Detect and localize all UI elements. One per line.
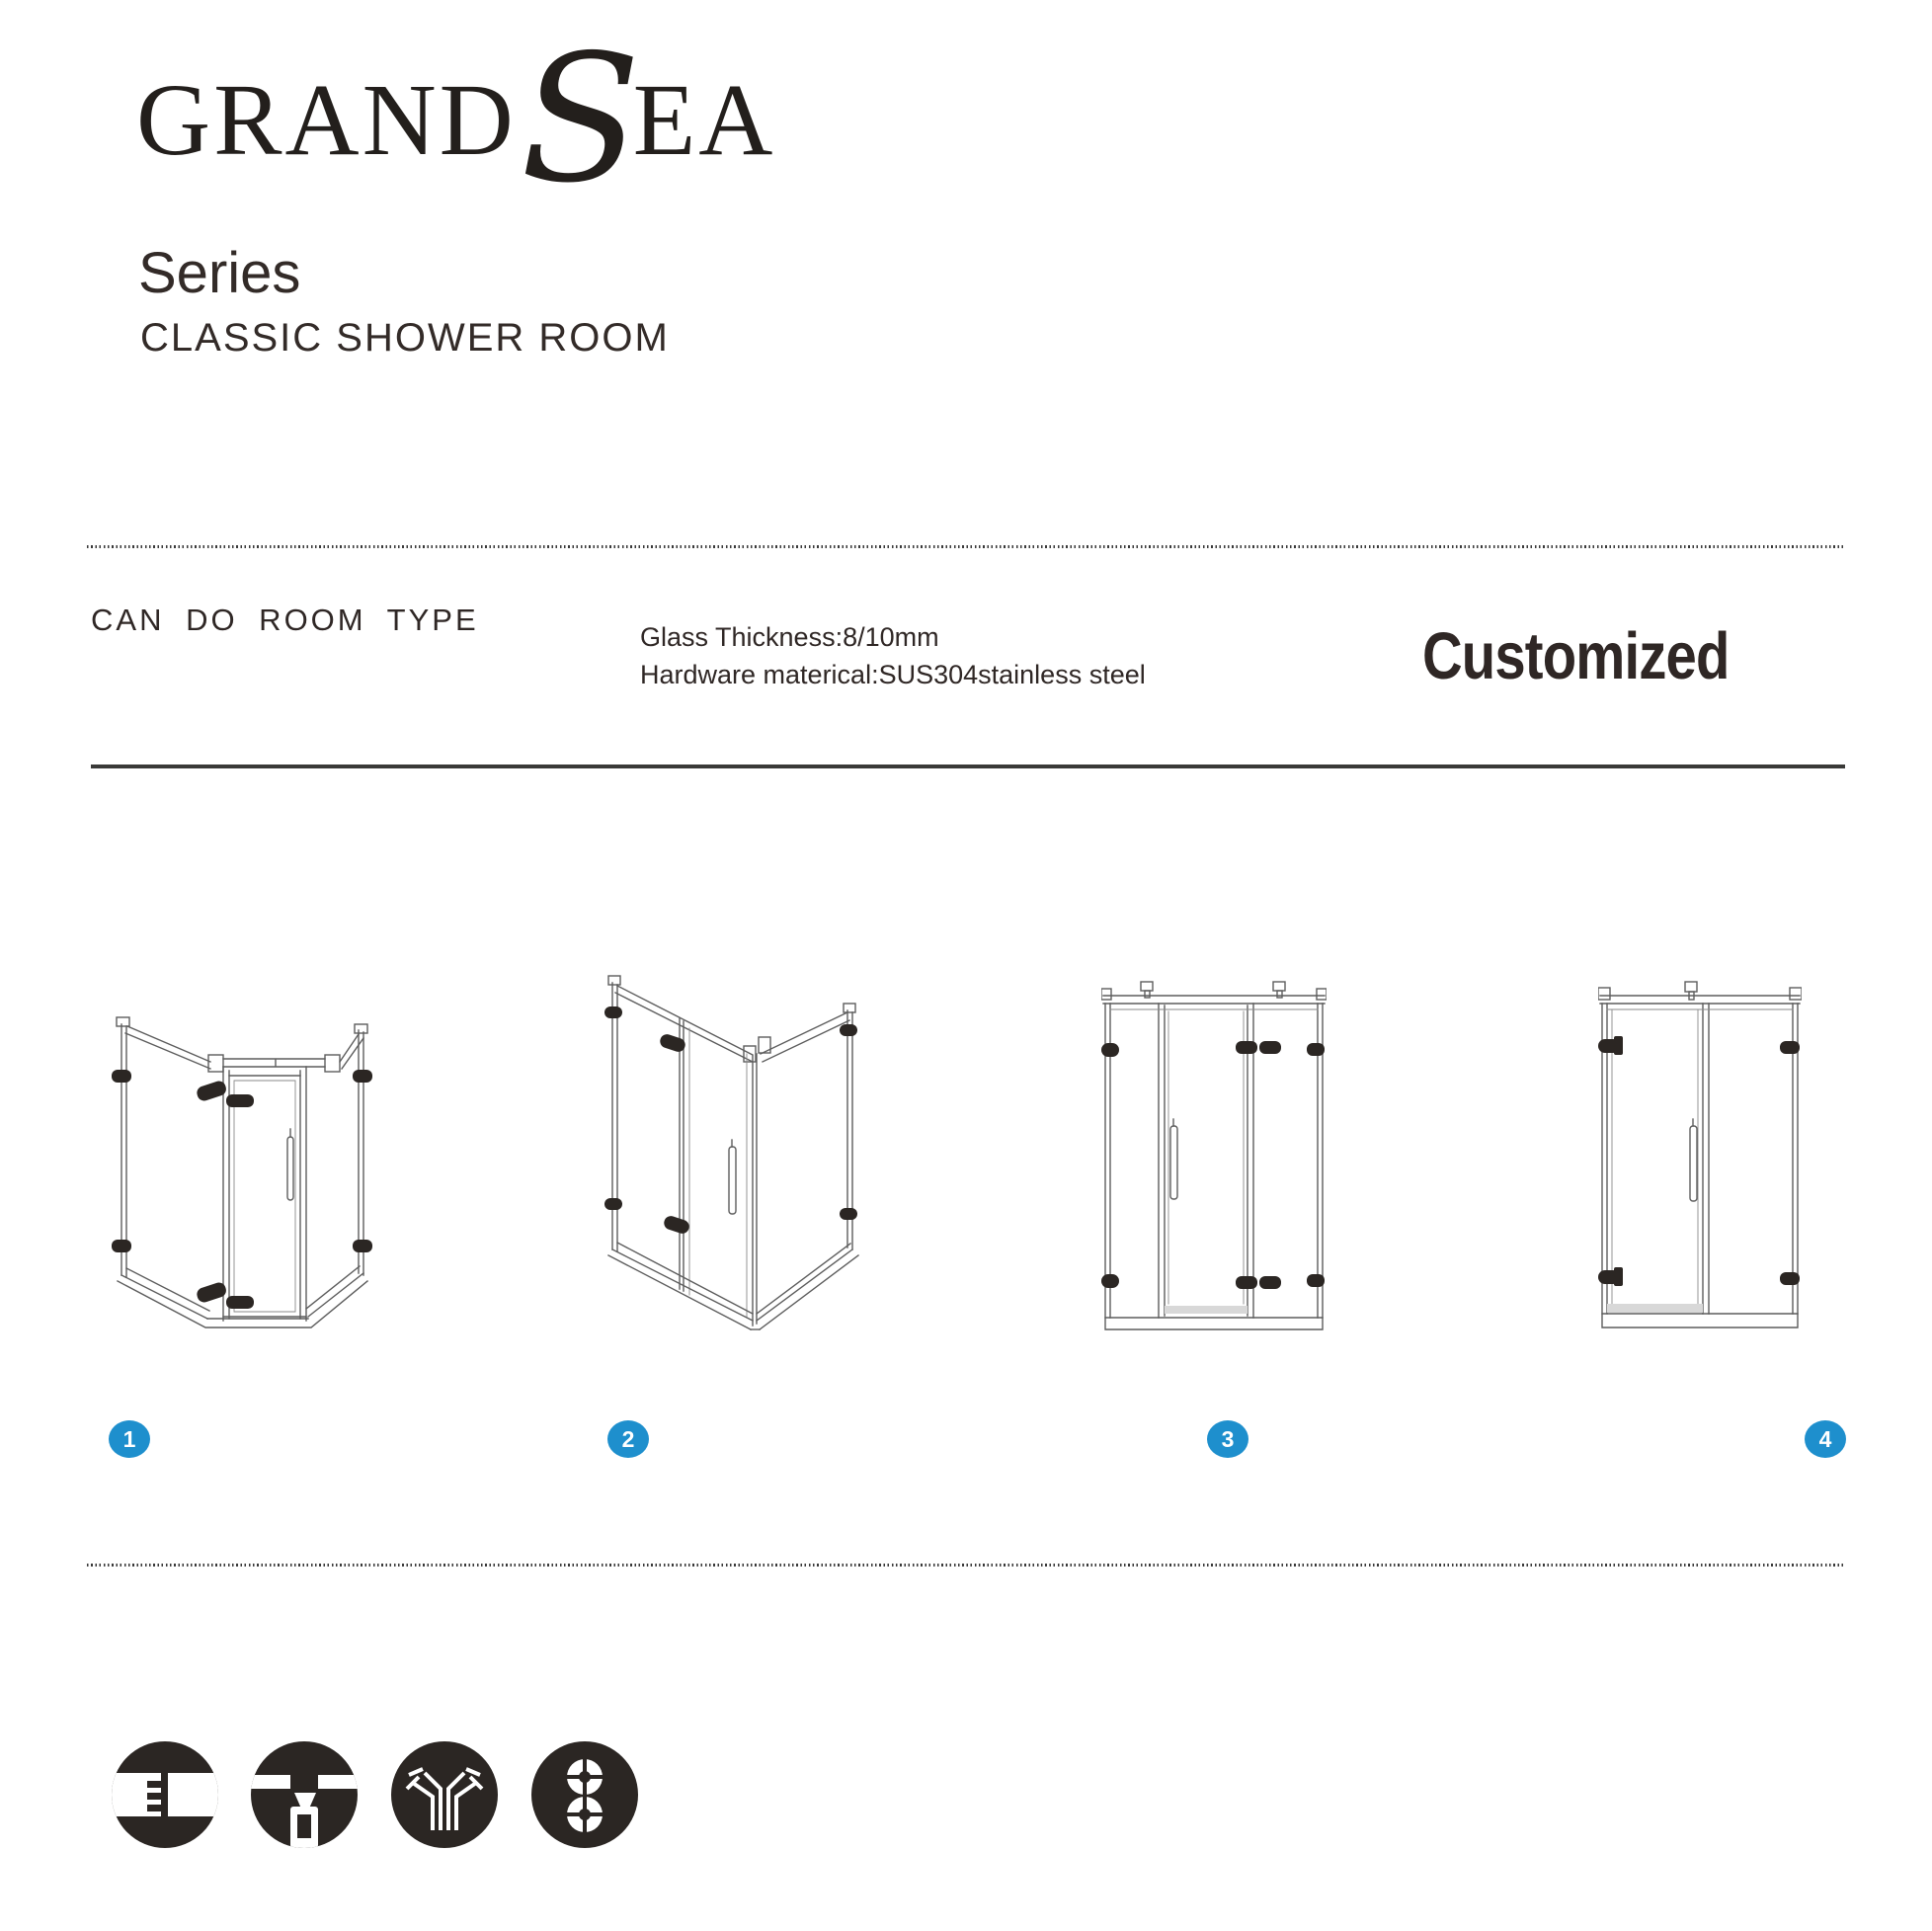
- drawing-corner-shower-room: [604, 953, 863, 1353]
- drawing-inline-door-two-fixed: [1101, 980, 1327, 1347]
- dotted-divider-bottom: [87, 1564, 1845, 1567]
- room-type-badge-1: 1: [109, 1420, 150, 1458]
- room-type-badge-3: 3: [1207, 1420, 1248, 1458]
- corner-seal-icon: [389, 1739, 500, 1850]
- catalog-page: GRANDSEA Series CLASSIC SHOWER ROOM CAN …: [0, 0, 1932, 1931]
- drawing-diamond-shower-room: [112, 973, 372, 1348]
- glass-joint-icon: [110, 1739, 220, 1850]
- spec-block: Glass Thickness:8/10mm Hardware materica…: [640, 618, 1146, 693]
- spec-hardware-material: Hardware materical:SUS304stainless steel: [640, 656, 1146, 693]
- logo-ea: EA: [633, 63, 776, 177]
- room-type-badge-2: 2: [607, 1420, 649, 1458]
- series-subtitle: CLASSIC SHOWER ROOM: [140, 316, 670, 361]
- drawing-inline-door-one-fixed: [1598, 980, 1802, 1347]
- room-type-badge-4: 4: [1805, 1420, 1846, 1458]
- double-roller-icon: [529, 1739, 640, 1850]
- support-bar-clamp-icon: [249, 1739, 360, 1850]
- logo-swash-s: S: [521, 17, 641, 221]
- dotted-divider-top: [87, 545, 1845, 548]
- room-type-heading: CAN DO ROOM TYPE: [91, 603, 479, 638]
- logo-grand: GRAND: [136, 63, 517, 177]
- solid-divider: [91, 764, 1845, 768]
- brand-logo: GRANDSEA: [136, 61, 775, 179]
- customized-label: Customized: [1422, 618, 1730, 694]
- spec-glass-thickness: Glass Thickness:8/10mm: [640, 618, 1146, 656]
- series-title: Series: [138, 240, 300, 306]
